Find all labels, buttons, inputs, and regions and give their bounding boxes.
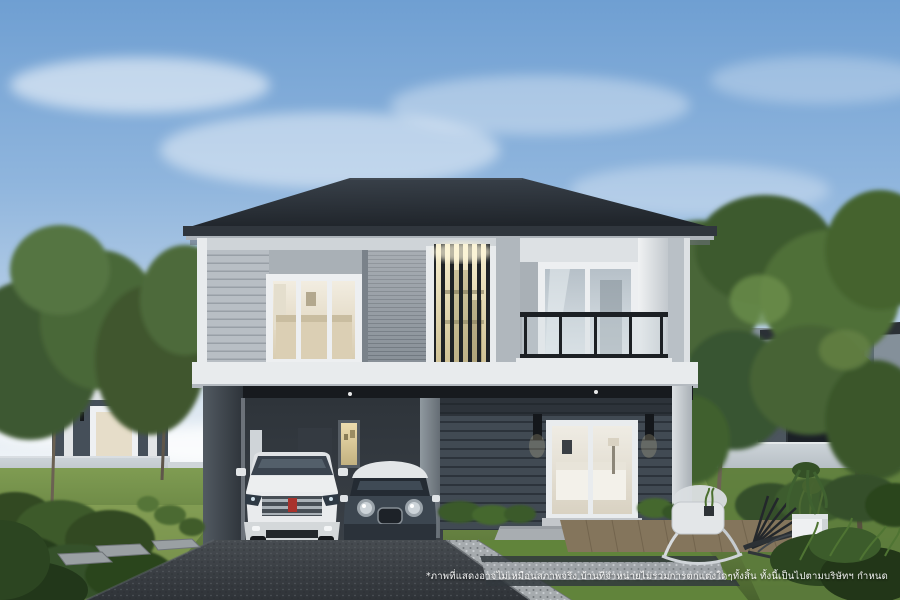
suv-hood (246, 476, 338, 492)
windshield-reflection (357, 481, 423, 490)
mini-mirror (432, 495, 440, 502)
windshield-reflection (258, 459, 326, 468)
door-mullion (588, 426, 593, 514)
second-floor (197, 238, 690, 370)
corner-trim (197, 238, 207, 368)
corner-trim (684, 238, 690, 368)
interior-bed (276, 322, 352, 359)
ceiling-downlight (594, 390, 598, 394)
suv-car (236, 452, 348, 547)
interior-headboard (276, 315, 352, 322)
mini-bumper (344, 524, 436, 540)
balcony (520, 238, 668, 362)
slatted-light-feature (432, 242, 492, 370)
scene-artwork (0, 0, 900, 600)
cloud (10, 57, 270, 113)
louver-shutter-panel (368, 250, 426, 368)
siding-panel (207, 250, 269, 368)
potted-plant-pot (704, 506, 714, 516)
mini-mirror (340, 495, 348, 502)
floor-band (192, 358, 698, 388)
mini-grille (378, 508, 402, 524)
interior-frame (306, 292, 316, 306)
carport-ceiling (203, 386, 693, 400)
feature-trim (490, 246, 496, 370)
suv-mirror (338, 468, 348, 476)
bumper-intake (266, 530, 318, 538)
window-mullion (296, 281, 301, 359)
glow (432, 242, 492, 262)
planter-rim (792, 514, 828, 519)
vertical-slats (434, 244, 490, 370)
chair-cushion (672, 502, 724, 534)
cloud (390, 75, 690, 135)
tree-foliage (819, 330, 871, 370)
disclaimer-text: *ภาพที่แสดงอาจไม่เหมือนสภาพจริง บ้านที่จ… (426, 571, 888, 582)
bedroom-window (266, 274, 362, 366)
suv-mirror (236, 468, 246, 476)
interior-lamp-stand (612, 446, 615, 474)
grey-panel (496, 238, 520, 368)
roof-fascia (183, 226, 717, 236)
suv-badge (288, 498, 297, 512)
mini-car (340, 461, 440, 540)
tree-foliage (730, 275, 790, 325)
panel-jamb (362, 250, 368, 368)
feature-trim (426, 246, 434, 370)
window-mullion (327, 281, 332, 359)
rendering-canvas: *ภาพที่แสดงอาจไม่เหมือนสภาพจริง บ้านที่จ… (0, 0, 900, 600)
fog-light (324, 526, 332, 531)
interior-lamp-shade (608, 438, 619, 446)
living-room-glass-door (546, 420, 638, 520)
headlight-glint (251, 497, 255, 501)
carport-lit-window (338, 420, 360, 468)
ceiling-downlight (348, 392, 352, 396)
tree-foliage (10, 225, 110, 315)
fog-light (252, 526, 260, 531)
balcony-fascia (516, 358, 672, 384)
headlight-glint (329, 497, 333, 501)
interior-picture (562, 440, 572, 454)
wall-top-shadow (440, 398, 672, 416)
